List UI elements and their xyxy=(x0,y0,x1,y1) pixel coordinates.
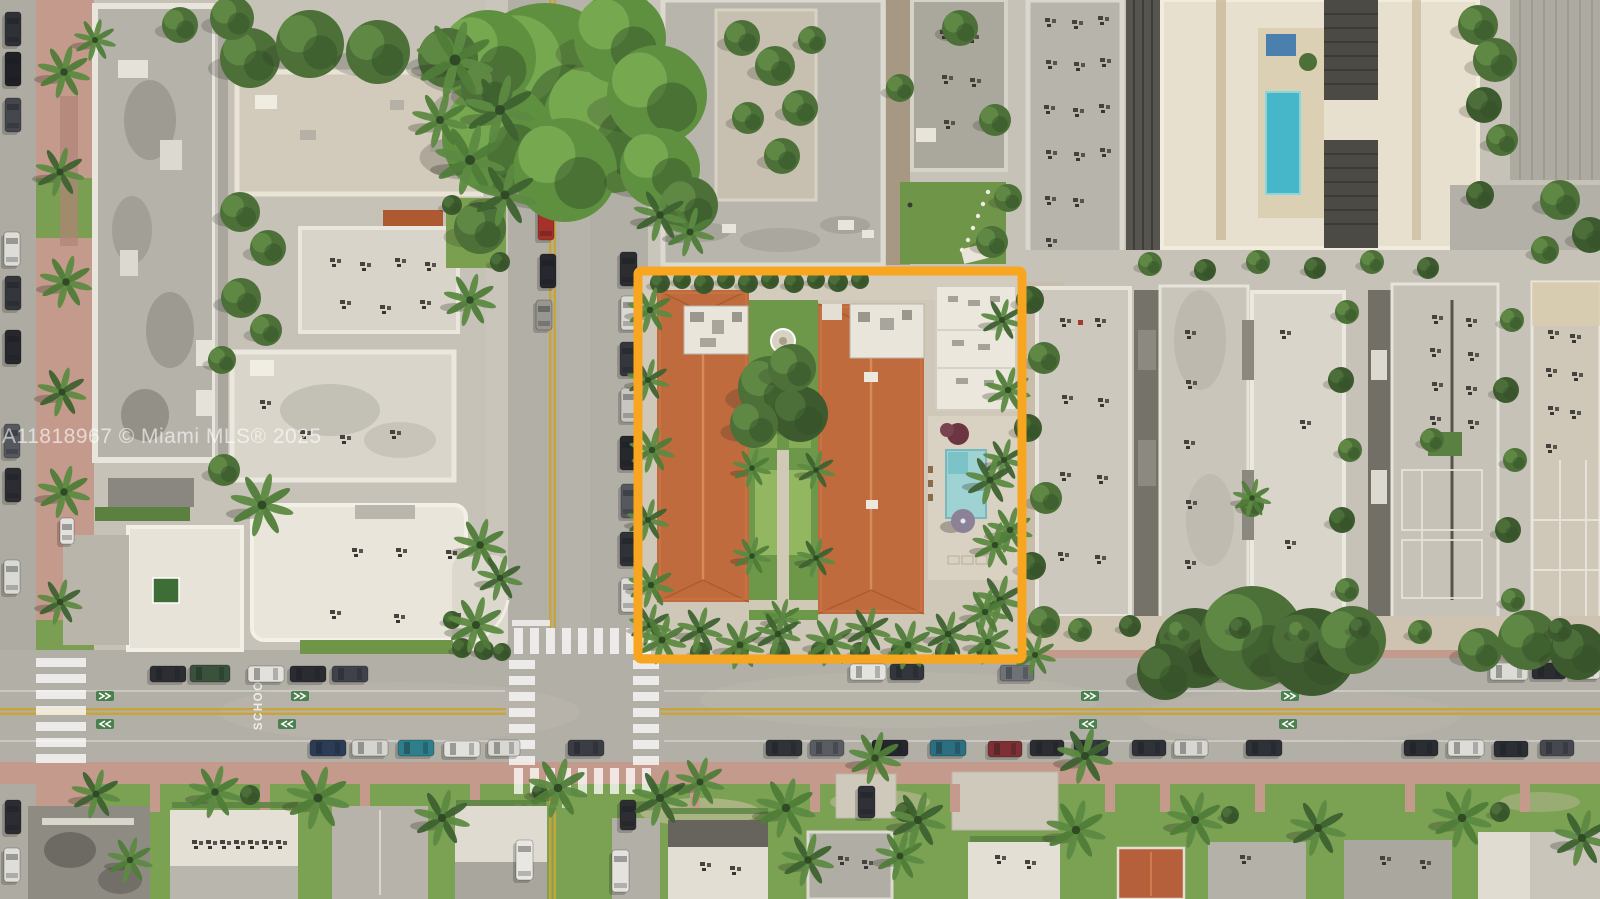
building-roof xyxy=(300,228,458,332)
house-roof xyxy=(1344,840,1452,899)
house-roof xyxy=(968,842,1060,899)
building-roof xyxy=(252,505,466,640)
courtyard-garden xyxy=(153,578,179,603)
dark-roof-building xyxy=(1368,290,1392,618)
east-terracotta-building xyxy=(818,304,924,614)
building-roof xyxy=(128,527,242,650)
pool-mats xyxy=(1266,34,1296,56)
louvered-roof xyxy=(1324,0,1378,100)
rooftop-pool xyxy=(1266,92,1300,194)
aerial-scene: SCHOOL xyxy=(0,0,1600,899)
louvered-roof xyxy=(1324,140,1378,248)
subject-property xyxy=(640,272,1022,660)
house-roof xyxy=(1208,842,1306,899)
aerial-photo: SCHOOL A11818967 © Miami ML xyxy=(0,0,1600,899)
building-roof xyxy=(1252,292,1344,634)
building-roof xyxy=(1037,288,1130,616)
corrugated-roof xyxy=(1510,0,1600,180)
west-terracotta-building xyxy=(657,290,749,602)
house-roof xyxy=(668,820,768,847)
building-roof xyxy=(1028,0,1122,260)
